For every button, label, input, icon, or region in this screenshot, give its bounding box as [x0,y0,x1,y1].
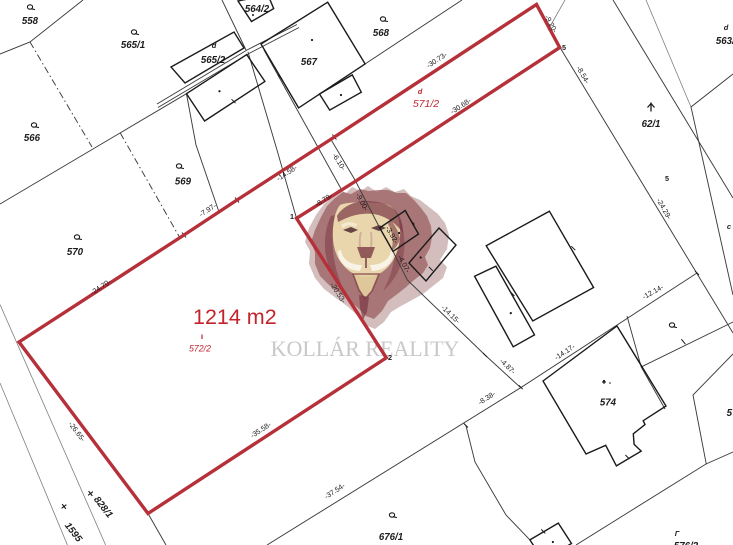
svg-text:572/2: 572/2 [189,344,211,354]
svg-text:576/2: 576/2 [674,541,699,545]
svg-text:57: 57 [727,408,733,419]
svg-text:568: 568 [373,28,390,39]
svg-text:574: 574 [600,398,617,409]
svg-text:62/1: 62/1 [642,119,661,130]
svg-text:564/2: 564/2 [245,4,270,15]
svg-text:1: 1 [290,212,294,221]
svg-text:1214 m2: 1214 m2 [193,305,277,329]
svg-text:567: 567 [301,57,318,68]
svg-text:d: d [418,87,423,96]
svg-text:5: 5 [665,174,669,183]
svg-text:d: d [212,41,217,50]
svg-text:5: 5 [562,43,566,52]
svg-text:Г: Г [675,529,680,538]
svg-text:570: 570 [67,247,84,258]
svg-text:558: 558 [22,16,39,27]
svg-text:563/1: 563/1 [716,36,733,47]
svg-text:676/1: 676/1 [379,532,403,543]
svg-text:KOLLÁR REALITY: KOLLÁR REALITY [271,336,460,361]
svg-text:566: 566 [24,133,41,144]
svg-text:565/1: 565/1 [121,40,145,51]
svg-text:2: 2 [388,353,392,362]
svg-text:569: 569 [175,177,192,188]
svg-text:565/2: 565/2 [201,55,226,66]
svg-text:571/2: 571/2 [413,98,439,110]
svg-text:d: d [724,23,729,32]
